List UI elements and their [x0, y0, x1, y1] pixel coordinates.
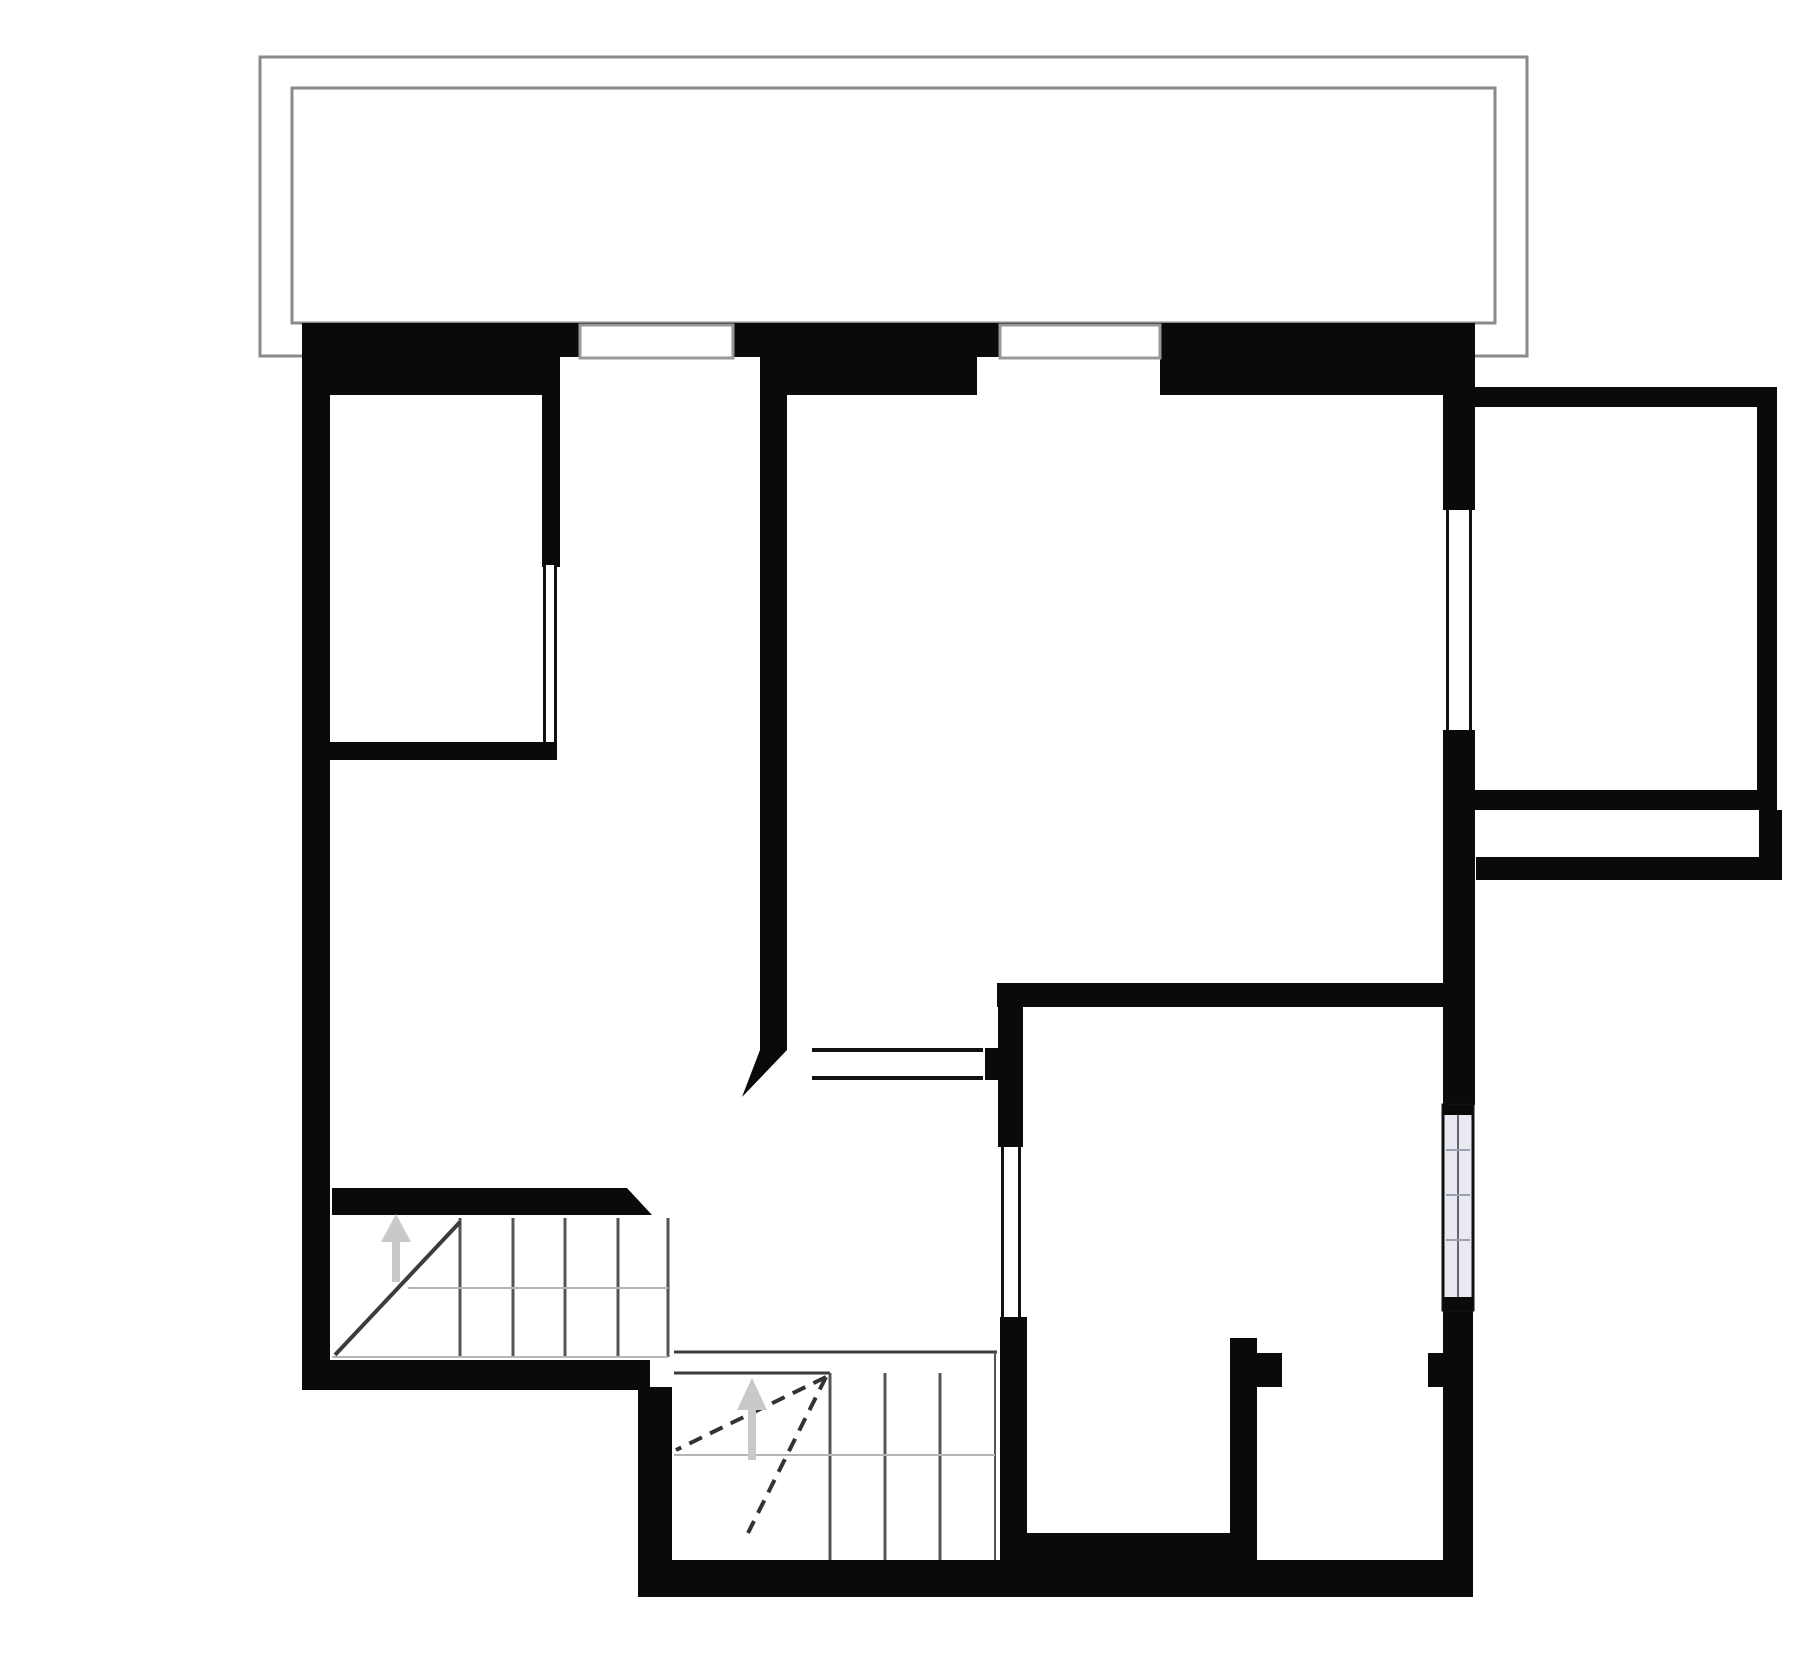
right-wall-mid: [1443, 730, 1475, 1105]
south-window-cap-bottom: [1443, 1297, 1473, 1310]
room-divider-wall: [1000, 1317, 1027, 1597]
top-window-1: [580, 325, 733, 358]
window-recess-2: [977, 357, 1160, 395]
bottom-wall-left: [303, 1360, 650, 1390]
floor-plan-page: [0, 0, 1800, 1656]
south-window-cap-top: [1443, 1105, 1473, 1115]
top-window-2: [1000, 325, 1160, 358]
stairs-top-wall: [332, 1188, 627, 1215]
southeast-wall: [1476, 857, 1759, 880]
window-recess-1: [560, 357, 760, 395]
bottom-wall-main: [638, 1560, 1473, 1597]
room1-bottom-wall: [330, 742, 557, 760]
east-window: [1446, 510, 1472, 730]
southeast-wall-stub: [1759, 810, 1782, 880]
right-wall-lower: [1443, 1310, 1473, 1560]
extension-right-wall: [1757, 387, 1777, 810]
plan-background: [0, 0, 1800, 1656]
bath-door-nub: [1257, 1353, 1282, 1387]
interior-wall-vertical: [998, 983, 1023, 1147]
right-wall-upper: [1443, 323, 1475, 510]
room1-side-wall: [542, 357, 560, 567]
extension-bottom-wall: [1475, 790, 1777, 810]
bottom-step-wall: [1025, 1533, 1230, 1563]
floor-plan: [0, 0, 1800, 1656]
extension-top-wall: [1475, 387, 1777, 407]
top-wall: [302, 323, 1445, 395]
doorway-stub: [985, 1048, 998, 1080]
bath-partition-wall: [1230, 1338, 1257, 1560]
right-door-nub: [1428, 1353, 1443, 1387]
interior-wall-horizontal: [997, 983, 1444, 1007]
left-wall: [302, 323, 330, 1390]
hall-partition-wall: [760, 357, 787, 1050]
